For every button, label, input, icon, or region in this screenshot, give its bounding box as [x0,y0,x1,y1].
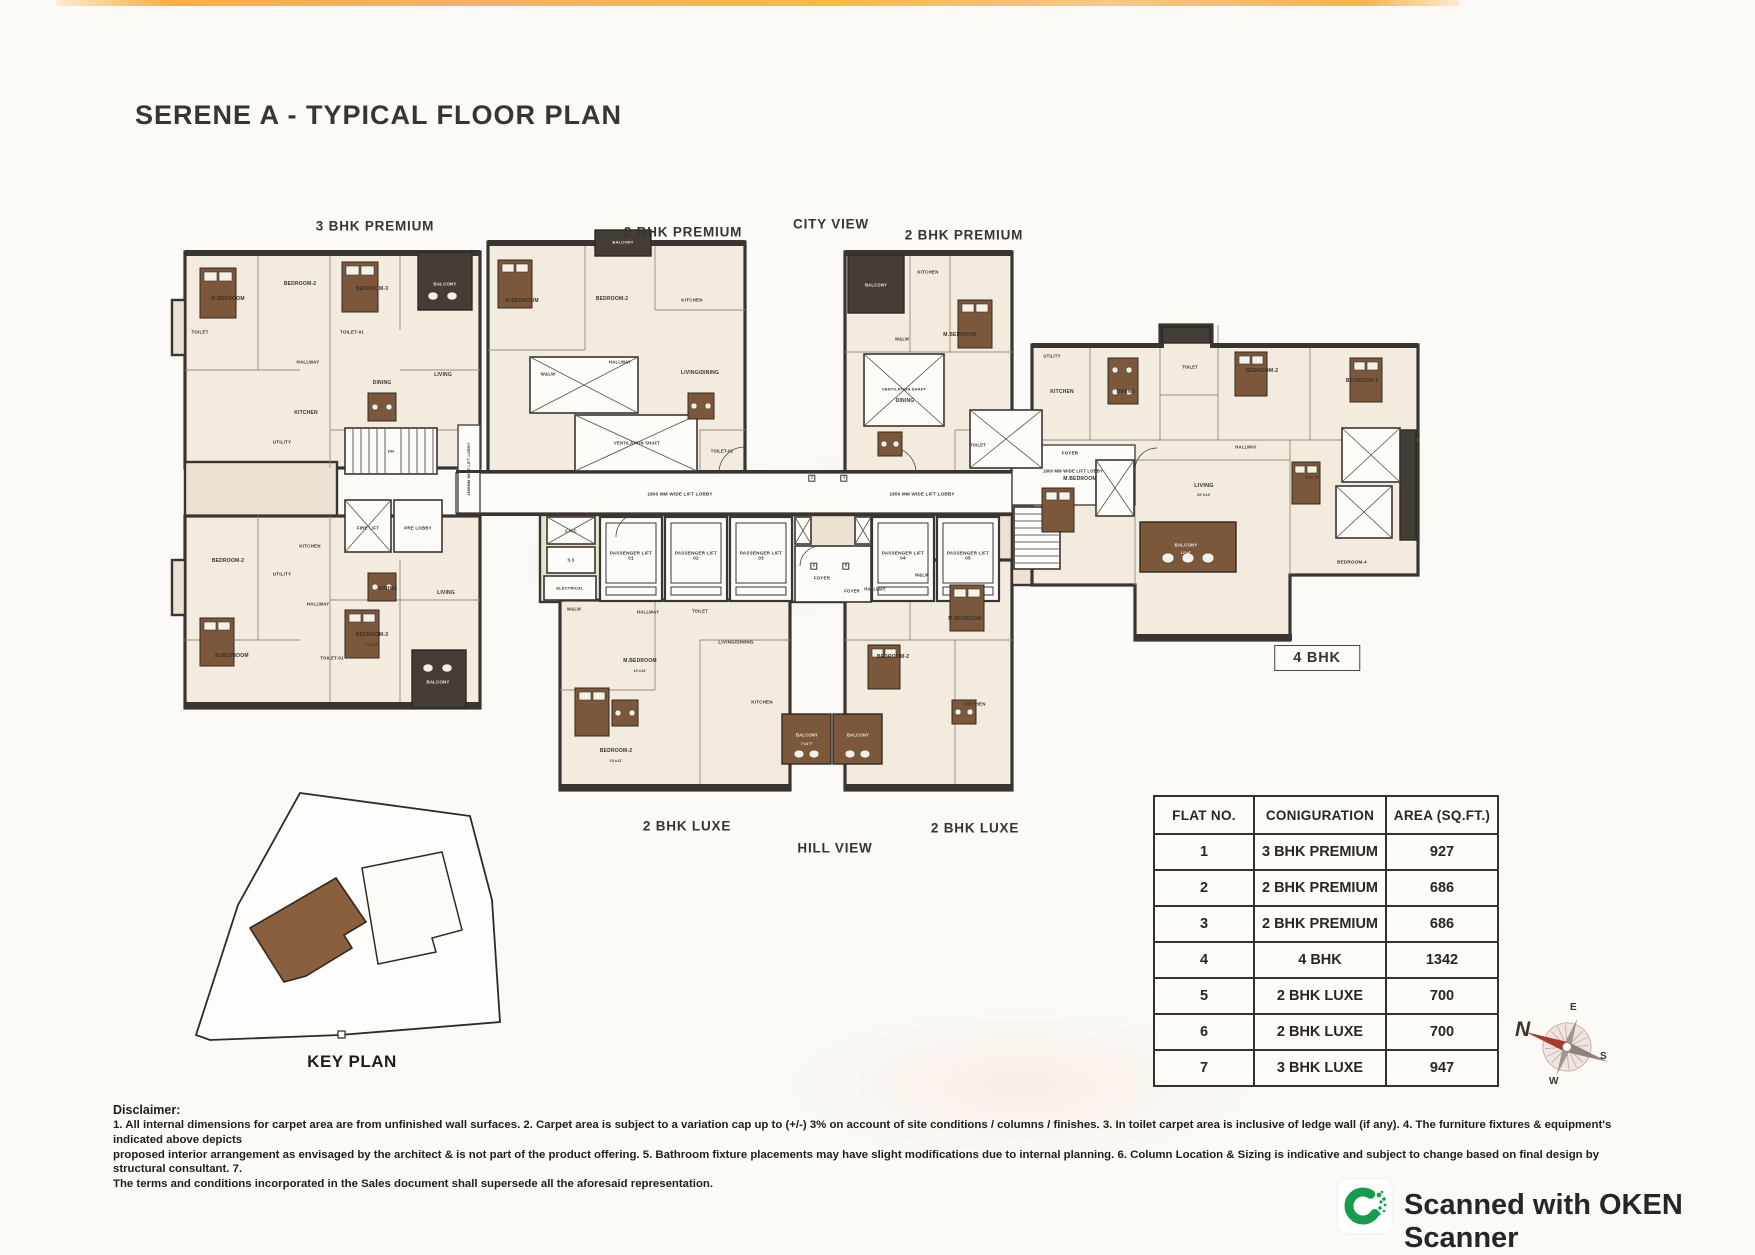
disclaimer-line: proposed interior arrangement as envisag… [113,1148,1628,1178]
flat-table-cell: 1342 [1386,942,1498,978]
flat-table-row: 13 BHK PREMIUM927 [1154,834,1498,870]
view-label-hill: HILL VIEW [797,841,872,856]
flat-table-cell: 6 [1154,1014,1254,1050]
flat-table-row: 52 BHK LUXE700 [1154,978,1498,1014]
disclaimer-block: Disclaimer: 1. All internal dimensions f… [113,1103,1628,1192]
flat-table-cell: 686 [1386,870,1498,906]
flat-table-cell: 7 [1154,1050,1254,1086]
flat-table-cell: 686 [1386,906,1498,942]
view-label-city: CITY VIEW [793,217,869,232]
compass-north-label: N [1515,1018,1530,1042]
flat-table-row: 62 BHK LUXE700 [1154,1014,1498,1050]
flat-table-cell: 5 [1154,978,1254,1014]
flat-table-cell: 3 [1154,906,1254,942]
flat-table-cell: 947 [1386,1050,1498,1086]
unit-label-4bhk: 4 BHK [1274,645,1360,671]
flat-table-cell: 4 [1154,942,1254,978]
flat-table-header-flatno: FLAT NO. [1154,796,1254,834]
compass-south-label: S [1600,1051,1607,1062]
flat-table-cell: 3 BHK PREMIUM [1254,834,1386,870]
unit-label-2bhk-premium-2: 2 BHK PREMIUM [905,228,1023,243]
flat-table-cell: 927 [1386,834,1498,870]
disclaimer-line: The terms and conditions incorporated in… [113,1177,1628,1192]
flat-table-header-row: FLAT NO. CONIGURATION AREA (SQ.FT.) [1154,796,1498,834]
flat-table-header-area: AREA (SQ.FT.) [1386,796,1498,834]
flat-table-cell: 1 [1154,834,1254,870]
unit-label-2bhk-premium-1: 2 BHK PREMIUM [624,225,742,240]
disclaimer-heading: Disclaimer: [113,1103,1628,1117]
flat-table-cell: 2 [1154,870,1254,906]
flat-configuration-table: FLAT NO. CONIGURATION AREA (SQ.FT.) 13 B… [1153,795,1499,1087]
flat-table-row: 73 BHK LUXE947 [1154,1050,1498,1086]
scanner-footer-text: Scanned with OKEN Scanner [1404,1189,1755,1255]
key-plan-drawing [175,780,535,1070]
flat-table-body: 13 BHK PREMIUM92722 BHK PREMIUM68632 BHK… [1154,834,1498,1086]
compass-east-label: E [1570,1002,1577,1013]
flat-table-cell: 2 BHK PREMIUM [1254,906,1386,942]
oken-scanner-logo-icon [1338,1179,1392,1233]
flat-table-row: 44 BHK1342 [1154,942,1498,978]
flat-table-header-configuration: CONIGURATION [1254,796,1386,834]
flat-table-cell: 2 BHK LUXE [1254,978,1386,1014]
flat-table-cell: 700 [1386,1014,1498,1050]
flat-table-row: 22 BHK PREMIUM686 [1154,870,1498,906]
flat-table-cell: 4 BHK [1254,942,1386,978]
flat-table-row: 32 BHK PREMIUM686 [1154,906,1498,942]
flat-table-cell: 3 BHK LUXE [1254,1050,1386,1086]
disclaimer-line: 1. All internal dimensions for carpet ar… [113,1118,1628,1148]
compass-rose-icon [1510,990,1625,1105]
unit-label-2bhk-luxe-1: 2 BHK LUXE [643,819,731,834]
compass-west-label: W [1549,1076,1558,1087]
flat-table-cell: 700 [1386,978,1498,1014]
unit-label-2bhk-luxe-2: 2 BHK LUXE [931,821,1019,836]
flat-table-cell: 2 BHK PREMIUM [1254,870,1386,906]
unit-label-3bhk-premium: 3 BHK PREMIUM [316,219,434,234]
key-plan-label: KEY PLAN [307,1052,397,1072]
flat-table-cell: 2 BHK LUXE [1254,1014,1386,1050]
